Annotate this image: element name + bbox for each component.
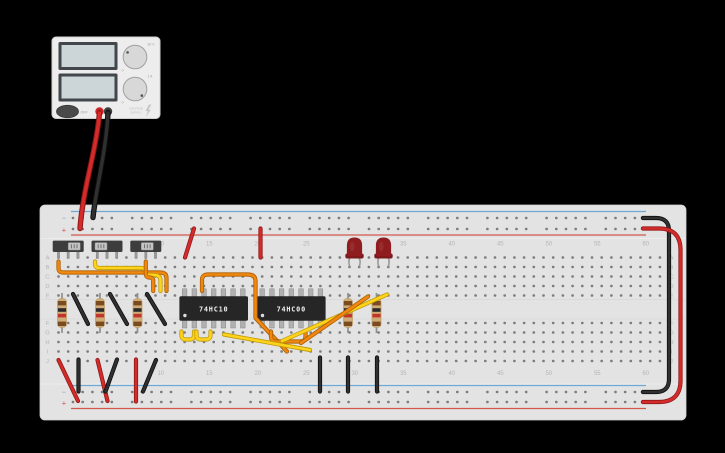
breadboard-hole[interactable]: [600, 285, 603, 288]
breadboard-hole[interactable]: [624, 228, 627, 231]
breadboard-hole[interactable]: [600, 360, 603, 363]
breadboard-hole[interactable]: [565, 217, 568, 220]
breadboard-hole[interactable]: [125, 275, 128, 278]
breadboard-hole[interactable]: [437, 401, 440, 404]
breadboard-hole[interactable]: [290, 285, 293, 288]
breadboard-hole[interactable]: [574, 228, 577, 231]
breadboard-hole[interactable]: [164, 256, 167, 259]
breadboard-hole[interactable]: [125, 341, 128, 344]
breadboard-hole[interactable]: [219, 401, 222, 404]
breadboard-hole[interactable]: [639, 275, 642, 278]
breadboard-hole[interactable]: [484, 266, 487, 269]
breadboard-hole[interactable]: [630, 275, 633, 278]
breadboard-hole[interactable]: [465, 275, 468, 278]
breadboard-hole[interactable]: [506, 217, 509, 220]
breadboard-hole[interactable]: [329, 266, 332, 269]
breadboard-hole[interactable]: [193, 275, 196, 278]
breadboard-hole[interactable]: [503, 285, 506, 288]
breadboard-hole[interactable]: [562, 360, 565, 363]
breadboard-hole[interactable]: [300, 256, 303, 259]
breadboard-hole[interactable]: [406, 294, 409, 297]
breadboard-hole[interactable]: [474, 256, 477, 259]
breadboard-hole[interactable]: [562, 285, 565, 288]
breadboard-hole[interactable]: [164, 294, 167, 297]
breadboard-hole[interactable]: [639, 285, 642, 288]
breadboard-hole[interactable]: [494, 275, 497, 278]
breadboard-hole[interactable]: [67, 341, 70, 344]
breadboard-hole[interactable]: [533, 360, 536, 363]
breadboard-hole[interactable]: [300, 266, 303, 269]
breadboard-hole[interactable]: [131, 217, 134, 220]
breadboard-hole[interactable]: [455, 285, 458, 288]
breadboard-hole[interactable]: [610, 256, 613, 259]
breadboard-hole[interactable]: [377, 401, 380, 404]
breadboard-hole[interactable]: [77, 350, 80, 353]
breadboard-hole[interactable]: [67, 331, 70, 334]
breadboard-hole[interactable]: [242, 266, 245, 269]
breadboard-hole[interactable]: [72, 217, 75, 220]
breadboard-hole[interactable]: [183, 331, 186, 334]
breadboard-hole[interactable]: [251, 331, 254, 334]
breadboard-hole[interactable]: [494, 266, 497, 269]
breadboard-hole[interactable]: [329, 285, 332, 288]
breadboard-hole[interactable]: [145, 360, 148, 363]
breadboard-hole[interactable]: [377, 350, 380, 353]
breadboard-hole[interactable]: [436, 266, 439, 269]
breadboard-hole[interactable]: [630, 294, 633, 297]
breadboard-hole[interactable]: [278, 401, 281, 404]
breadboard-hole[interactable]: [318, 401, 321, 404]
breadboard-hole[interactable]: [446, 217, 449, 220]
breadboard-hole[interactable]: [190, 391, 193, 394]
slide-switch-2[interactable]: [92, 241, 123, 259]
breadboard-hole[interactable]: [358, 331, 361, 334]
breadboard-hole[interactable]: [242, 341, 245, 344]
breadboard-hole[interactable]: [125, 331, 128, 334]
breadboard-hole[interactable]: [465, 331, 468, 334]
breadboard-hole[interactable]: [437, 228, 440, 231]
breadboard-hole[interactable]: [290, 266, 293, 269]
breadboard-hole[interactable]: [474, 285, 477, 288]
breadboard-hole[interactable]: [486, 217, 489, 220]
breadboard-hole[interactable]: [125, 294, 128, 297]
breadboard-hole[interactable]: [309, 285, 312, 288]
breadboard-hole[interactable]: [397, 322, 400, 325]
breadboard-hole[interactable]: [474, 275, 477, 278]
breadboard-hole[interactable]: [242, 285, 245, 288]
breadboard-hole[interactable]: [494, 285, 497, 288]
breadboard-hole[interactable]: [318, 217, 321, 220]
breadboard-hole[interactable]: [368, 360, 371, 363]
breadboard-hole[interactable]: [125, 256, 128, 259]
breadboard-hole[interactable]: [96, 275, 99, 278]
breadboard-hole[interactable]: [649, 322, 652, 325]
breadboard-hole[interactable]: [358, 322, 361, 325]
breadboard-hole[interactable]: [348, 275, 351, 278]
breadboard-hole[interactable]: [164, 331, 167, 334]
breadboard-hole[interactable]: [397, 256, 400, 259]
breadboard-hole[interactable]: [212, 256, 215, 259]
breadboard-hole[interactable]: [620, 341, 623, 344]
breadboard-hole[interactable]: [319, 341, 322, 344]
breadboard-hole[interactable]: [387, 217, 390, 220]
breadboard-hole[interactable]: [387, 341, 390, 344]
breadboard-hole[interactable]: [614, 401, 617, 404]
breadboard-hole[interactable]: [212, 285, 215, 288]
breadboard-hole[interactable]: [67, 322, 70, 325]
breadboard-hole[interactable]: [533, 322, 536, 325]
breadboard-hole[interactable]: [581, 360, 584, 363]
breadboard-hole[interactable]: [600, 294, 603, 297]
breadboard-hole[interactable]: [154, 294, 157, 297]
breadboard-hole[interactable]: [562, 331, 565, 334]
breadboard-hole[interactable]: [193, 341, 196, 344]
breadboard-hole[interactable]: [571, 360, 574, 363]
breadboard-hole[interactable]: [183, 285, 186, 288]
breadboard-hole[interactable]: [368, 401, 371, 404]
breadboard-hole[interactable]: [259, 217, 262, 220]
breadboard-hole[interactable]: [525, 391, 528, 394]
breadboard-hole[interactable]: [552, 275, 555, 278]
breadboard-hole[interactable]: [426, 256, 429, 259]
breadboard-hole[interactable]: [222, 360, 225, 363]
breadboard-hole[interactable]: [494, 360, 497, 363]
breadboard-hole[interactable]: [115, 285, 118, 288]
breadboard-hole[interactable]: [288, 228, 291, 231]
breadboard-hole[interactable]: [210, 391, 213, 394]
breadboard-hole[interactable]: [571, 294, 574, 297]
breadboard-hole[interactable]: [174, 266, 177, 269]
breadboard-hole[interactable]: [494, 350, 497, 353]
breadboard-hole[interactable]: [377, 331, 380, 334]
breadboard-hole[interactable]: [474, 266, 477, 269]
breadboard-hole[interactable]: [659, 360, 662, 363]
breadboard-hole[interactable]: [339, 256, 342, 259]
breadboard-hole[interactable]: [261, 360, 264, 363]
breadboard-hole[interactable]: [455, 350, 458, 353]
breadboard-hole[interactable]: [251, 350, 254, 353]
breadboard-hole[interactable]: [446, 228, 449, 231]
breadboard-hole[interactable]: [261, 350, 264, 353]
breadboard-hole[interactable]: [426, 266, 429, 269]
breadboard-hole[interactable]: [397, 350, 400, 353]
breadboard-hole[interactable]: [496, 228, 499, 231]
breadboard-hole[interactable]: [106, 331, 109, 334]
breadboard-hole[interactable]: [232, 331, 235, 334]
breadboard-hole[interactable]: [269, 401, 272, 404]
breadboard-hole[interactable]: [338, 228, 341, 231]
breadboard-hole[interactable]: [600, 331, 603, 334]
breadboard-hole[interactable]: [377, 341, 380, 344]
breadboard-hole[interactable]: [397, 391, 400, 394]
breadboard-hole[interactable]: [387, 350, 390, 353]
breadboard-hole[interactable]: [614, 228, 617, 231]
breadboard-hole[interactable]: [610, 266, 613, 269]
breadboard-hole[interactable]: [96, 341, 99, 344]
breadboard-hole[interactable]: [164, 350, 167, 353]
breadboard-hole[interactable]: [591, 275, 594, 278]
breadboard-hole[interactable]: [591, 294, 594, 297]
breadboard-hole[interactable]: [77, 275, 80, 278]
breadboard-hole[interactable]: [309, 217, 312, 220]
breadboard-hole[interactable]: [427, 391, 430, 394]
breadboard-hole[interactable]: [639, 322, 642, 325]
breadboard-hole[interactable]: [620, 285, 623, 288]
breadboard-hole[interactable]: [571, 322, 574, 325]
breadboard-hole[interactable]: [358, 294, 361, 297]
breadboard-hole[interactable]: [426, 285, 429, 288]
breadboard-hole[interactable]: [229, 401, 232, 404]
breadboard-hole[interactable]: [533, 331, 536, 334]
breadboard-hole[interactable]: [503, 360, 506, 363]
breadboard-hole[interactable]: [397, 217, 400, 220]
breadboard-hole[interactable]: [115, 341, 118, 344]
breadboard-hole[interactable]: [200, 391, 203, 394]
breadboard-hole[interactable]: [397, 341, 400, 344]
breadboard-hole[interactable]: [232, 350, 235, 353]
breadboard-hole[interactable]: [106, 322, 109, 325]
breadboard-hole[interactable]: [309, 228, 312, 231]
breadboard-hole[interactable]: [193, 285, 196, 288]
breadboard-hole[interactable]: [164, 341, 167, 344]
breadboard-hole[interactable]: [81, 401, 84, 404]
breadboard-hole[interactable]: [624, 391, 627, 394]
breadboard-hole[interactable]: [436, 256, 439, 259]
breadboard-hole[interactable]: [584, 217, 587, 220]
breadboard-hole[interactable]: [160, 217, 163, 220]
breadboard-hole[interactable]: [620, 266, 623, 269]
breadboard-hole[interactable]: [455, 294, 458, 297]
breadboard-hole[interactable]: [174, 294, 177, 297]
breadboard-hole[interactable]: [319, 350, 322, 353]
breadboard-hole[interactable]: [552, 341, 555, 344]
breadboard-hole[interactable]: [271, 275, 274, 278]
breadboard-hole[interactable]: [154, 331, 157, 334]
breadboard-hole[interactable]: [222, 256, 225, 259]
breadboard-hole[interactable]: [242, 256, 245, 259]
breadboard-hole[interactable]: [523, 360, 526, 363]
breadboard-hole[interactable]: [203, 350, 206, 353]
breadboard-hole[interactable]: [86, 341, 89, 344]
breadboard-hole[interactable]: [319, 275, 322, 278]
breadboard-hole[interactable]: [183, 275, 186, 278]
breadboard-hole[interactable]: [329, 341, 332, 344]
breadboard-hole[interactable]: [649, 331, 652, 334]
breadboard-hole[interactable]: [513, 275, 516, 278]
breadboard-hole[interactable]: [368, 350, 371, 353]
breadboard-hole[interactable]: [77, 266, 80, 269]
breadboard-hole[interactable]: [513, 322, 516, 325]
breadboard-hole[interactable]: [649, 275, 652, 278]
breadboard-hole[interactable]: [222, 266, 225, 269]
breadboard-hole[interactable]: [515, 228, 518, 231]
breadboard-hole[interactable]: [591, 266, 594, 269]
breadboard-hole[interactable]: [565, 228, 568, 231]
breadboard-hole[interactable]: [600, 322, 603, 325]
breadboard-hole[interactable]: [416, 331, 419, 334]
breadboard-hole[interactable]: [86, 285, 89, 288]
breadboard-hole[interactable]: [513, 294, 516, 297]
breadboard-hole[interactable]: [368, 256, 371, 259]
breadboard-hole[interactable]: [229, 391, 232, 394]
breadboard-hole[interactable]: [67, 266, 70, 269]
breadboard-hole[interactable]: [591, 256, 594, 259]
breadboard-hole[interactable]: [600, 341, 603, 344]
breadboard-hole[interactable]: [416, 350, 419, 353]
power-toggle[interactable]: [57, 105, 79, 117]
breadboard-hole[interactable]: [318, 228, 321, 231]
breadboard-hole[interactable]: [571, 350, 574, 353]
breadboard-hole[interactable]: [456, 217, 459, 220]
breadboard-hole[interactable]: [436, 285, 439, 288]
breadboard-hole[interactable]: [242, 350, 245, 353]
breadboard-hole[interactable]: [581, 294, 584, 297]
breadboard-hole[interactable]: [174, 285, 177, 288]
breadboard-hole[interactable]: [200, 401, 203, 404]
breadboard-hole[interactable]: [545, 391, 548, 394]
breadboard-hole[interactable]: [106, 350, 109, 353]
breadboard-hole[interactable]: [571, 341, 574, 344]
breadboard-hole[interactable]: [620, 294, 623, 297]
breadboard-hole[interactable]: [523, 266, 526, 269]
breadboard-hole[interactable]: [86, 360, 89, 363]
breadboard-hole[interactable]: [574, 217, 577, 220]
breadboard-hole[interactable]: [639, 341, 642, 344]
breadboard-hole[interactable]: [397, 331, 400, 334]
breadboard-hole[interactable]: [251, 266, 254, 269]
breadboard-hole[interactable]: [125, 360, 128, 363]
breadboard-hole[interactable]: [523, 331, 526, 334]
breadboard-hole[interactable]: [659, 322, 662, 325]
breadboard-hole[interactable]: [513, 285, 516, 288]
breadboard-hole[interactable]: [455, 266, 458, 269]
breadboard-hole[interactable]: [271, 266, 274, 269]
breadboard-hole[interactable]: [591, 331, 594, 334]
breadboard-hole[interactable]: [259, 401, 262, 404]
breadboard-hole[interactable]: [523, 256, 526, 259]
breadboard-hole[interactable]: [542, 294, 545, 297]
breadboard-hole[interactable]: [562, 350, 565, 353]
breadboard-hole[interactable]: [249, 401, 252, 404]
breadboard-hole[interactable]: [525, 401, 528, 404]
breadboard-hole[interactable]: [581, 341, 584, 344]
breadboard-hole[interactable]: [200, 217, 203, 220]
breadboard-hole[interactable]: [659, 266, 662, 269]
breadboard-hole[interactable]: [111, 217, 114, 220]
breadboard-hole[interactable]: [427, 401, 430, 404]
breadboard-hole[interactable]: [649, 360, 652, 363]
breadboard-hole[interactable]: [280, 360, 283, 363]
breadboard-hole[interactable]: [232, 285, 235, 288]
breadboard-hole[interactable]: [154, 341, 157, 344]
breadboard-hole[interactable]: [309, 256, 312, 259]
breadboard-hole[interactable]: [288, 217, 291, 220]
breadboard-hole[interactable]: [96, 285, 99, 288]
breadboard-hole[interactable]: [67, 275, 70, 278]
breadboard-hole[interactable]: [591, 322, 594, 325]
breadboard-hole[interactable]: [145, 285, 148, 288]
breadboard-hole[interactable]: [368, 266, 371, 269]
breadboard-hole[interactable]: [86, 256, 89, 259]
breadboard-hole[interactable]: [562, 266, 565, 269]
breadboard-hole[interactable]: [406, 341, 409, 344]
breadboard-hole[interactable]: [338, 217, 341, 220]
breadboard-hole[interactable]: [555, 228, 558, 231]
breadboard-hole[interactable]: [620, 275, 623, 278]
breadboard-hole[interactable]: [552, 285, 555, 288]
breadboard-hole[interactable]: [125, 350, 128, 353]
breadboard-hole[interactable]: [496, 391, 499, 394]
breadboard-hole[interactable]: [328, 391, 331, 394]
breadboard-hole[interactable]: [494, 331, 497, 334]
breadboard-hole[interactable]: [630, 350, 633, 353]
breadboard-hole[interactable]: [271, 350, 274, 353]
breadboard-hole[interactable]: [649, 285, 652, 288]
breadboard-hole[interactable]: [309, 360, 312, 363]
breadboard-hole[interactable]: [649, 256, 652, 259]
breadboard-hole[interactable]: [515, 391, 518, 394]
breadboard-hole[interactable]: [649, 350, 652, 353]
breadboard-hole[interactable]: [387, 228, 390, 231]
breadboard-hole[interactable]: [496, 217, 499, 220]
breadboard-hole[interactable]: [659, 331, 662, 334]
breadboard-hole[interactable]: [605, 228, 608, 231]
breadboard-hole[interactable]: [339, 275, 342, 278]
breadboard-hole[interactable]: [269, 217, 272, 220]
breadboard-hole[interactable]: [232, 256, 235, 259]
breadboard-hole[interactable]: [347, 228, 350, 231]
breadboard-hole[interactable]: [634, 391, 637, 394]
breadboard-hole[interactable]: [455, 331, 458, 334]
breadboard-hole[interactable]: [219, 391, 222, 394]
breadboard-hole[interactable]: [164, 360, 167, 363]
breadboard-hole[interactable]: [328, 401, 331, 404]
breadboard-hole[interactable]: [614, 391, 617, 394]
breadboard-hole[interactable]: [328, 217, 331, 220]
breadboard-hole[interactable]: [624, 401, 627, 404]
breadboard-hole[interactable]: [571, 285, 574, 288]
breadboard-hole[interactable]: [494, 256, 497, 259]
breadboard-hole[interactable]: [533, 350, 536, 353]
breadboard-hole[interactable]: [154, 322, 157, 325]
breadboard-hole[interactable]: [659, 341, 662, 344]
breadboard-hole[interactable]: [368, 217, 371, 220]
breadboard-hole[interactable]: [261, 285, 264, 288]
breadboard-hole[interactable]: [456, 401, 459, 404]
breadboard-hole[interactable]: [67, 350, 70, 353]
breadboard-hole[interactable]: [542, 266, 545, 269]
breadboard-hole[interactable]: [562, 275, 565, 278]
breadboard-hole[interactable]: [329, 294, 332, 297]
breadboard-hole[interactable]: [552, 350, 555, 353]
breadboard-hole[interactable]: [290, 331, 293, 334]
circuit-canvas[interactable]: 30 V 0 1 A 0 OFF VOLTAGE SUPPLY −+−+5510…: [0, 0, 725, 453]
breadboard-hole[interactable]: [484, 360, 487, 363]
breadboard-hole[interactable]: [610, 341, 613, 344]
breadboard-hole[interactable]: [377, 228, 380, 231]
breadboard-hole[interactable]: [542, 256, 545, 259]
breadboard-hole[interactable]: [465, 266, 468, 269]
breadboard-hole[interactable]: [300, 275, 303, 278]
breadboard-hole[interactable]: [523, 275, 526, 278]
breadboard-hole[interactable]: [174, 360, 177, 363]
breadboard-hole[interactable]: [515, 401, 518, 404]
breadboard-hole[interactable]: [339, 294, 342, 297]
breadboard-hole[interactable]: [466, 401, 469, 404]
breadboard-hole[interactable]: [329, 256, 332, 259]
breadboard-hole[interactable]: [542, 275, 545, 278]
breadboard-hole[interactable]: [407, 401, 410, 404]
